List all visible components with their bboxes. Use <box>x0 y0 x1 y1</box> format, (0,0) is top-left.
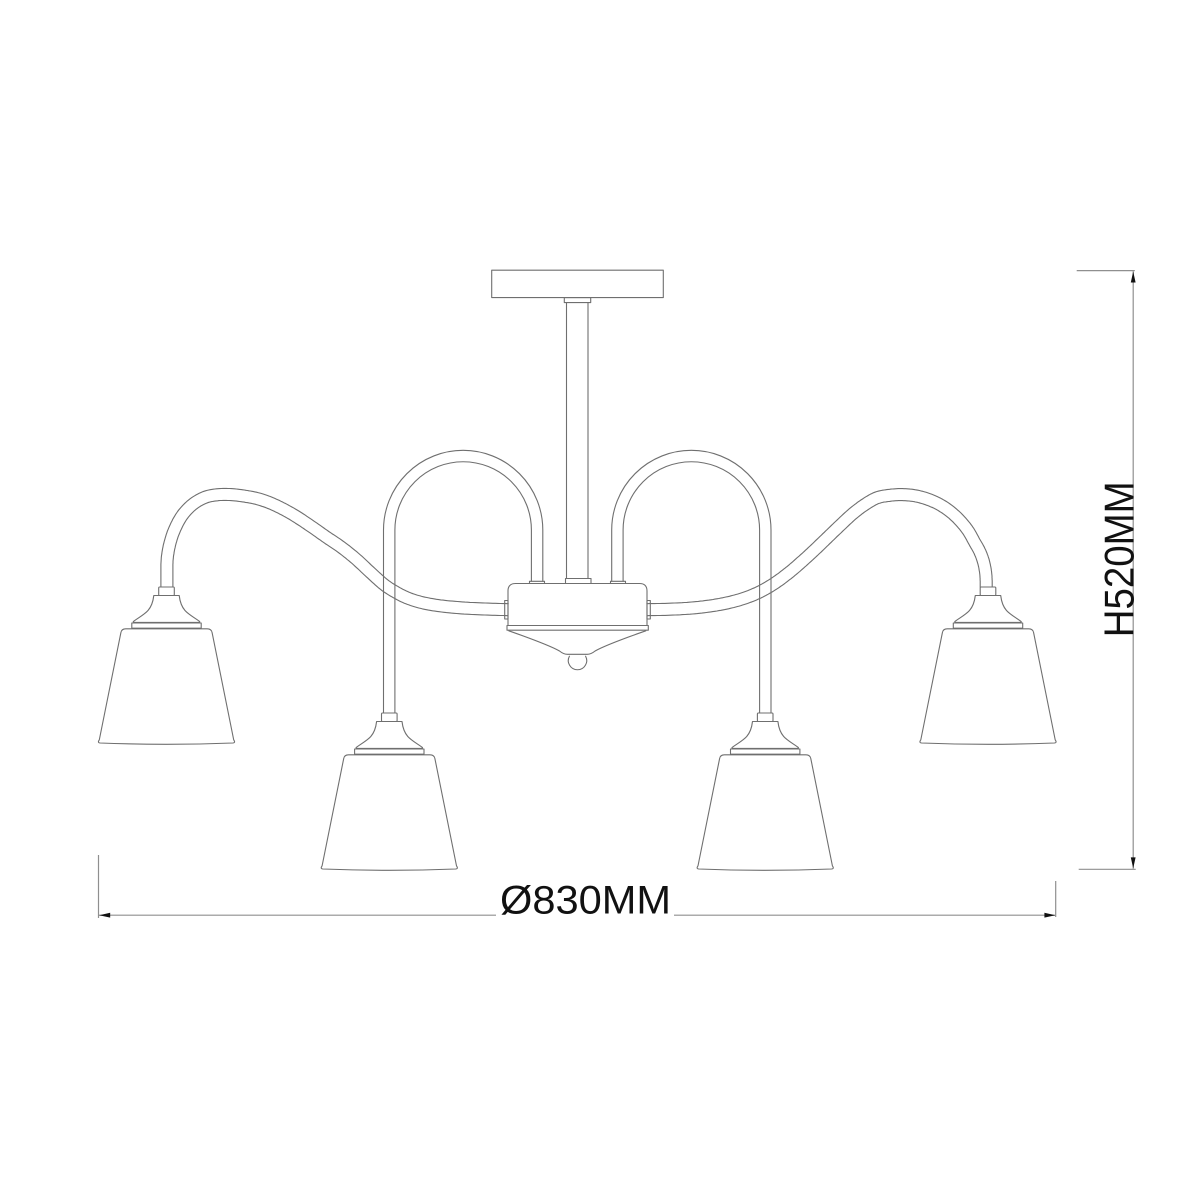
svg-text:Ø830MM: Ø830MM <box>500 879 671 923</box>
svg-text:H520MM: H520MM <box>1095 481 1142 637</box>
